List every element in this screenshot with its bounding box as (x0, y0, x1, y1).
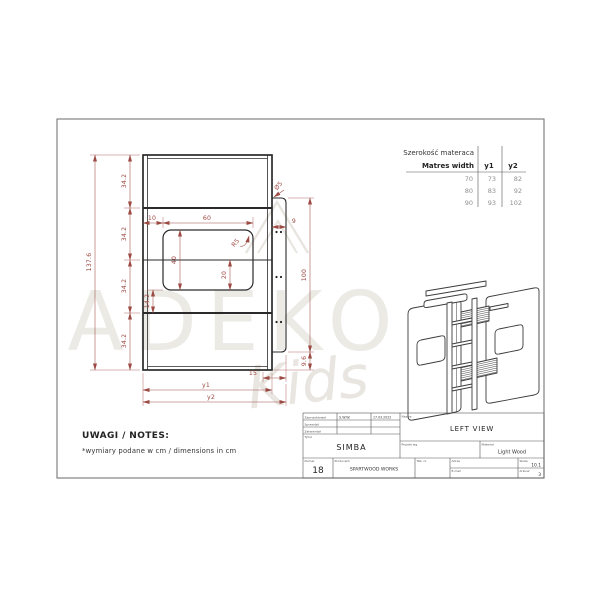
checked-label: Sprawdził (305, 422, 320, 426)
hole-dot (275, 276, 277, 278)
cell-width: 80 (465, 187, 473, 195)
dim-flange-bottom: 9.6 (301, 356, 308, 366)
scale-value: 10.1 (531, 462, 541, 468)
designed-date: 17.03.2022 (373, 416, 391, 420)
cell-y1: 73 (488, 175, 496, 183)
email-label: E-mail (452, 469, 462, 473)
notes-heading: UWAGI / NOTES: (82, 431, 169, 441)
dim-window-lower: 20 (221, 271, 228, 279)
dim-inset: 15 (249, 370, 257, 377)
dim-window-height: 40 (171, 256, 178, 264)
table-col-y1: y1 (484, 162, 494, 170)
maker-label: Producent (335, 459, 351, 463)
bed-ladder-rail (447, 302, 452, 414)
bed-ladder-rail (472, 298, 477, 410)
bed-right-window (495, 325, 523, 354)
dim-flange-height: 100 (301, 269, 308, 281)
bed-left-window (417, 336, 445, 365)
title-label: Tytuł (304, 435, 312, 439)
cell-y1: 83 (488, 187, 496, 195)
tab-label: Tab. nr (416, 459, 428, 463)
view-name: LEFT VIEW (450, 425, 494, 433)
hole-dot (275, 321, 277, 323)
dim-window-offset: 10 (148, 215, 156, 222)
approved-label: Zatwierdził (305, 429, 322, 433)
dim-segment: 34.2 (121, 334, 128, 349)
dim-window-width: 60 (203, 215, 211, 222)
cell-y2: 92 (514, 187, 522, 195)
scale-label: Skala (520, 459, 528, 463)
dim-segment: 34.2 (121, 174, 128, 189)
view-label: Nazwa (402, 415, 412, 419)
dim-y2: y2 (207, 394, 215, 401)
designed-label: Zaprojektował (305, 415, 327, 419)
material-label: Materiał (482, 443, 494, 447)
number-label: Numer (305, 459, 316, 463)
hole-dot (275, 231, 277, 233)
hole-dot (280, 276, 282, 278)
dim-segment: 34.2 (121, 279, 128, 294)
cell-width: 90 (465, 199, 473, 207)
table-col-y2: y2 (508, 162, 518, 170)
cell-y2: 102 (510, 199, 522, 207)
dim-below-window: 14.2 (144, 294, 151, 309)
notes-body: *wymiary podane w cm / dimensions in cm (82, 447, 237, 455)
table-title-en: Matres width (422, 162, 474, 170)
cell-y2: 82 (514, 175, 522, 183)
watermark-script: Kids (244, 342, 372, 422)
cad-canvas: ADEKO Kids (0, 0, 600, 600)
maker-name: SPARTWOOD WORKS (350, 467, 398, 473)
dim-total-height: 137.6 (86, 253, 93, 272)
sheet-label: Arkusz (520, 469, 530, 473)
hole-dot (280, 321, 282, 323)
web-label: Adres (452, 459, 461, 463)
dim-segment: 34.2 (121, 227, 128, 242)
designed-value: S.W.W. (339, 416, 350, 420)
project-label: Projekt wg (402, 443, 418, 447)
material-value: Light Wood (498, 450, 526, 456)
dim-flange-width: 9 (292, 218, 296, 225)
table-title-pl: Szerokość materaca (403, 149, 474, 157)
drawing-sheet: ADEKO Kids (0, 0, 600, 600)
sheet-value: 3 (538, 472, 541, 478)
dim-y1: y1 (202, 382, 210, 389)
hole-dot (280, 231, 282, 233)
product-title: SIMBA (336, 443, 366, 452)
cell-width: 70 (465, 175, 473, 183)
cell-y1: 93 (488, 199, 496, 207)
part-number: 18 (312, 466, 324, 476)
